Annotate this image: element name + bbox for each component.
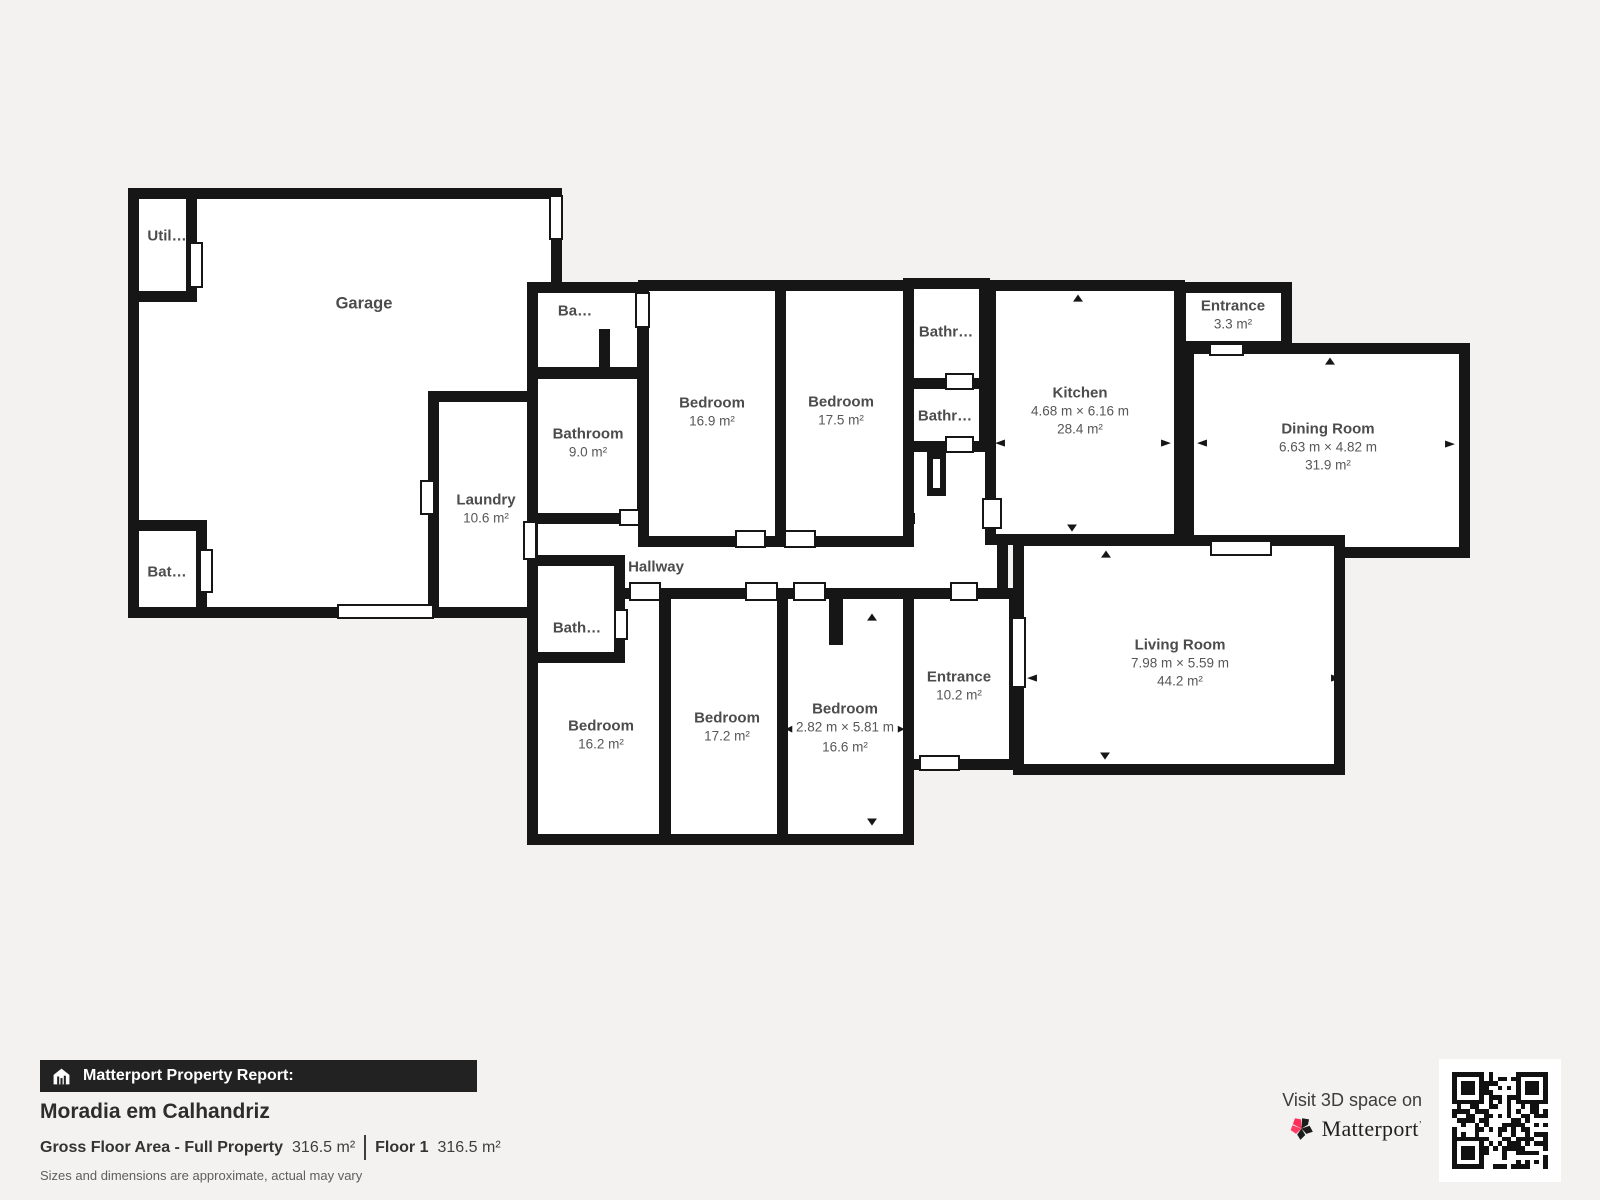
door-opening [1209, 343, 1244, 356]
door-opening [619, 509, 640, 526]
gfa-label: Gross Floor Area - Full Property [40, 1139, 283, 1157]
room-label-entrance-top: Entrance3.3 m² [1201, 297, 1265, 334]
window-opening [549, 195, 563, 240]
door-opening [945, 373, 974, 390]
door-opening [199, 549, 213, 593]
door-opening [793, 582, 826, 601]
room-label-garage: Garage [336, 295, 393, 314]
room-label-kitchen: Kitchen4.68 m × 6.16 m28.4 m² [1031, 384, 1129, 439]
door-opening [635, 292, 650, 328]
dimension-arrow-up-icon: ▲ [1325, 356, 1335, 365]
dimension-arrow-down-icon: ▼ [1100, 751, 1110, 760]
door-opening [784, 530, 816, 548]
dimension-arrow-up-icon: ▲ [1101, 549, 1111, 558]
door-opening [945, 436, 974, 453]
room-label-utility: Util… [147, 227, 186, 246]
dimension-arrow-left-icon: ◀ [995, 438, 1005, 447]
door-opening [189, 242, 203, 288]
room-label-bedroom-1: Bedroom16.9 m² [679, 394, 745, 431]
room-small-top [527, 282, 648, 378]
room-label-bathroom-main: Bathroom9.0 m² [553, 425, 624, 462]
door-opening [950, 582, 978, 601]
gfa-value: 316.5 m² [292, 1139, 355, 1157]
matterport-wordmark: Matterport’ [1322, 1116, 1422, 1142]
floor-area-info: Gross Floor Area - Full Property 316.5 m… [40, 1135, 501, 1160]
dimension-arrow-right-icon: ▶ [1445, 439, 1455, 448]
floor-value: 316.5 m² [438, 1139, 501, 1157]
room-label-bedroom-5: Bedroom ◀ 2.82 m × 5.81 m ▶ 16.6 m² [785, 700, 904, 757]
dimension-arrow-left-icon: ◀ [1027, 673, 1037, 682]
door-opening [735, 530, 766, 548]
room-bathroom-hall [527, 555, 625, 663]
garage-door-opening [337, 604, 434, 619]
door-opening [614, 609, 628, 640]
visit-3d-space-text: Visit 3D space on [1270, 1090, 1422, 1111]
dimension-arrow-down-icon: ▼ [867, 817, 877, 826]
wall-stub [599, 329, 610, 378]
matterport-property-report-page: Garage Util… Bat… Laundry10.6 m² Ba… Bat… [0, 0, 1600, 1200]
room-label-entrance-main: Entrance10.2 m² [927, 668, 991, 705]
wall-stub [829, 599, 843, 645]
dimension-arrow-up-icon: ▲ [1073, 293, 1083, 302]
door-opening [523, 521, 537, 560]
qr-card [1439, 1059, 1561, 1182]
house-icon [52, 1067, 71, 1086]
room-label-bedroom-3: Bedroom16.2 m² [568, 717, 634, 754]
dimension-arrow-left-icon: ◀ [1197, 438, 1207, 447]
door-opening [629, 582, 661, 601]
qr-code [1452, 1072, 1548, 1169]
room-label-bedroom-4: Bedroom17.2 m² [694, 709, 760, 746]
room-label-small-top: Ba… [558, 302, 592, 321]
room-label-living: Living Room7.98 m × 5.59 m44.2 m² [1131, 636, 1229, 691]
room-label-bathroom-hall: Bath… [553, 619, 601, 638]
dimension-arrow-right-icon: ▶ [1161, 438, 1171, 447]
room-label-hallway: Hallway [628, 558, 684, 577]
door-opening [1011, 617, 1026, 688]
disclaimer-text: Sizes and dimensions are approximate, ac… [40, 1168, 362, 1183]
matterport-logo-icon [1288, 1115, 1315, 1142]
door-opening [919, 755, 960, 771]
room-label-laundry: Laundry10.6 m² [456, 491, 515, 528]
dimension-arrow-right-icon: ▶ [1331, 673, 1341, 682]
divider [364, 1135, 366, 1160]
dimension-arrow-right-icon: ▶ [898, 725, 905, 735]
room-label-dining: Dining Room6.63 m × 4.82 m31.9 m² [1279, 420, 1377, 475]
room-label-bathroom-mid: Bathr… [918, 407, 972, 426]
floor-label: Floor 1 [375, 1139, 428, 1157]
door-opening [1210, 540, 1272, 556]
report-header-bar: Matterport Property Report: [40, 1060, 477, 1092]
door-opening [982, 498, 1002, 529]
door-opening [745, 582, 778, 601]
dimension-arrow-up-icon: ▲ [867, 612, 877, 621]
room-label-garage-bathroom: Bat… [147, 563, 186, 582]
window-opening [420, 480, 435, 515]
room-label-bathroom-top: Bathr… [919, 323, 973, 342]
room-label-bedroom-2: Bedroom17.5 m² [808, 393, 874, 430]
dimension-arrow-left-icon: ◀ [785, 725, 792, 735]
report-bar-title: Matterport Property Report: [83, 1067, 294, 1085]
matterport-logo: Matterport’ [1250, 1115, 1422, 1142]
property-name: Moradia em Calhandriz [40, 1100, 270, 1124]
door-opening [931, 457, 942, 490]
dimension-arrow-down-icon: ▼ [1325, 535, 1335, 544]
dimension-arrow-down-icon: ▼ [1067, 523, 1077, 532]
hallway-corridor-opening [915, 513, 991, 543]
